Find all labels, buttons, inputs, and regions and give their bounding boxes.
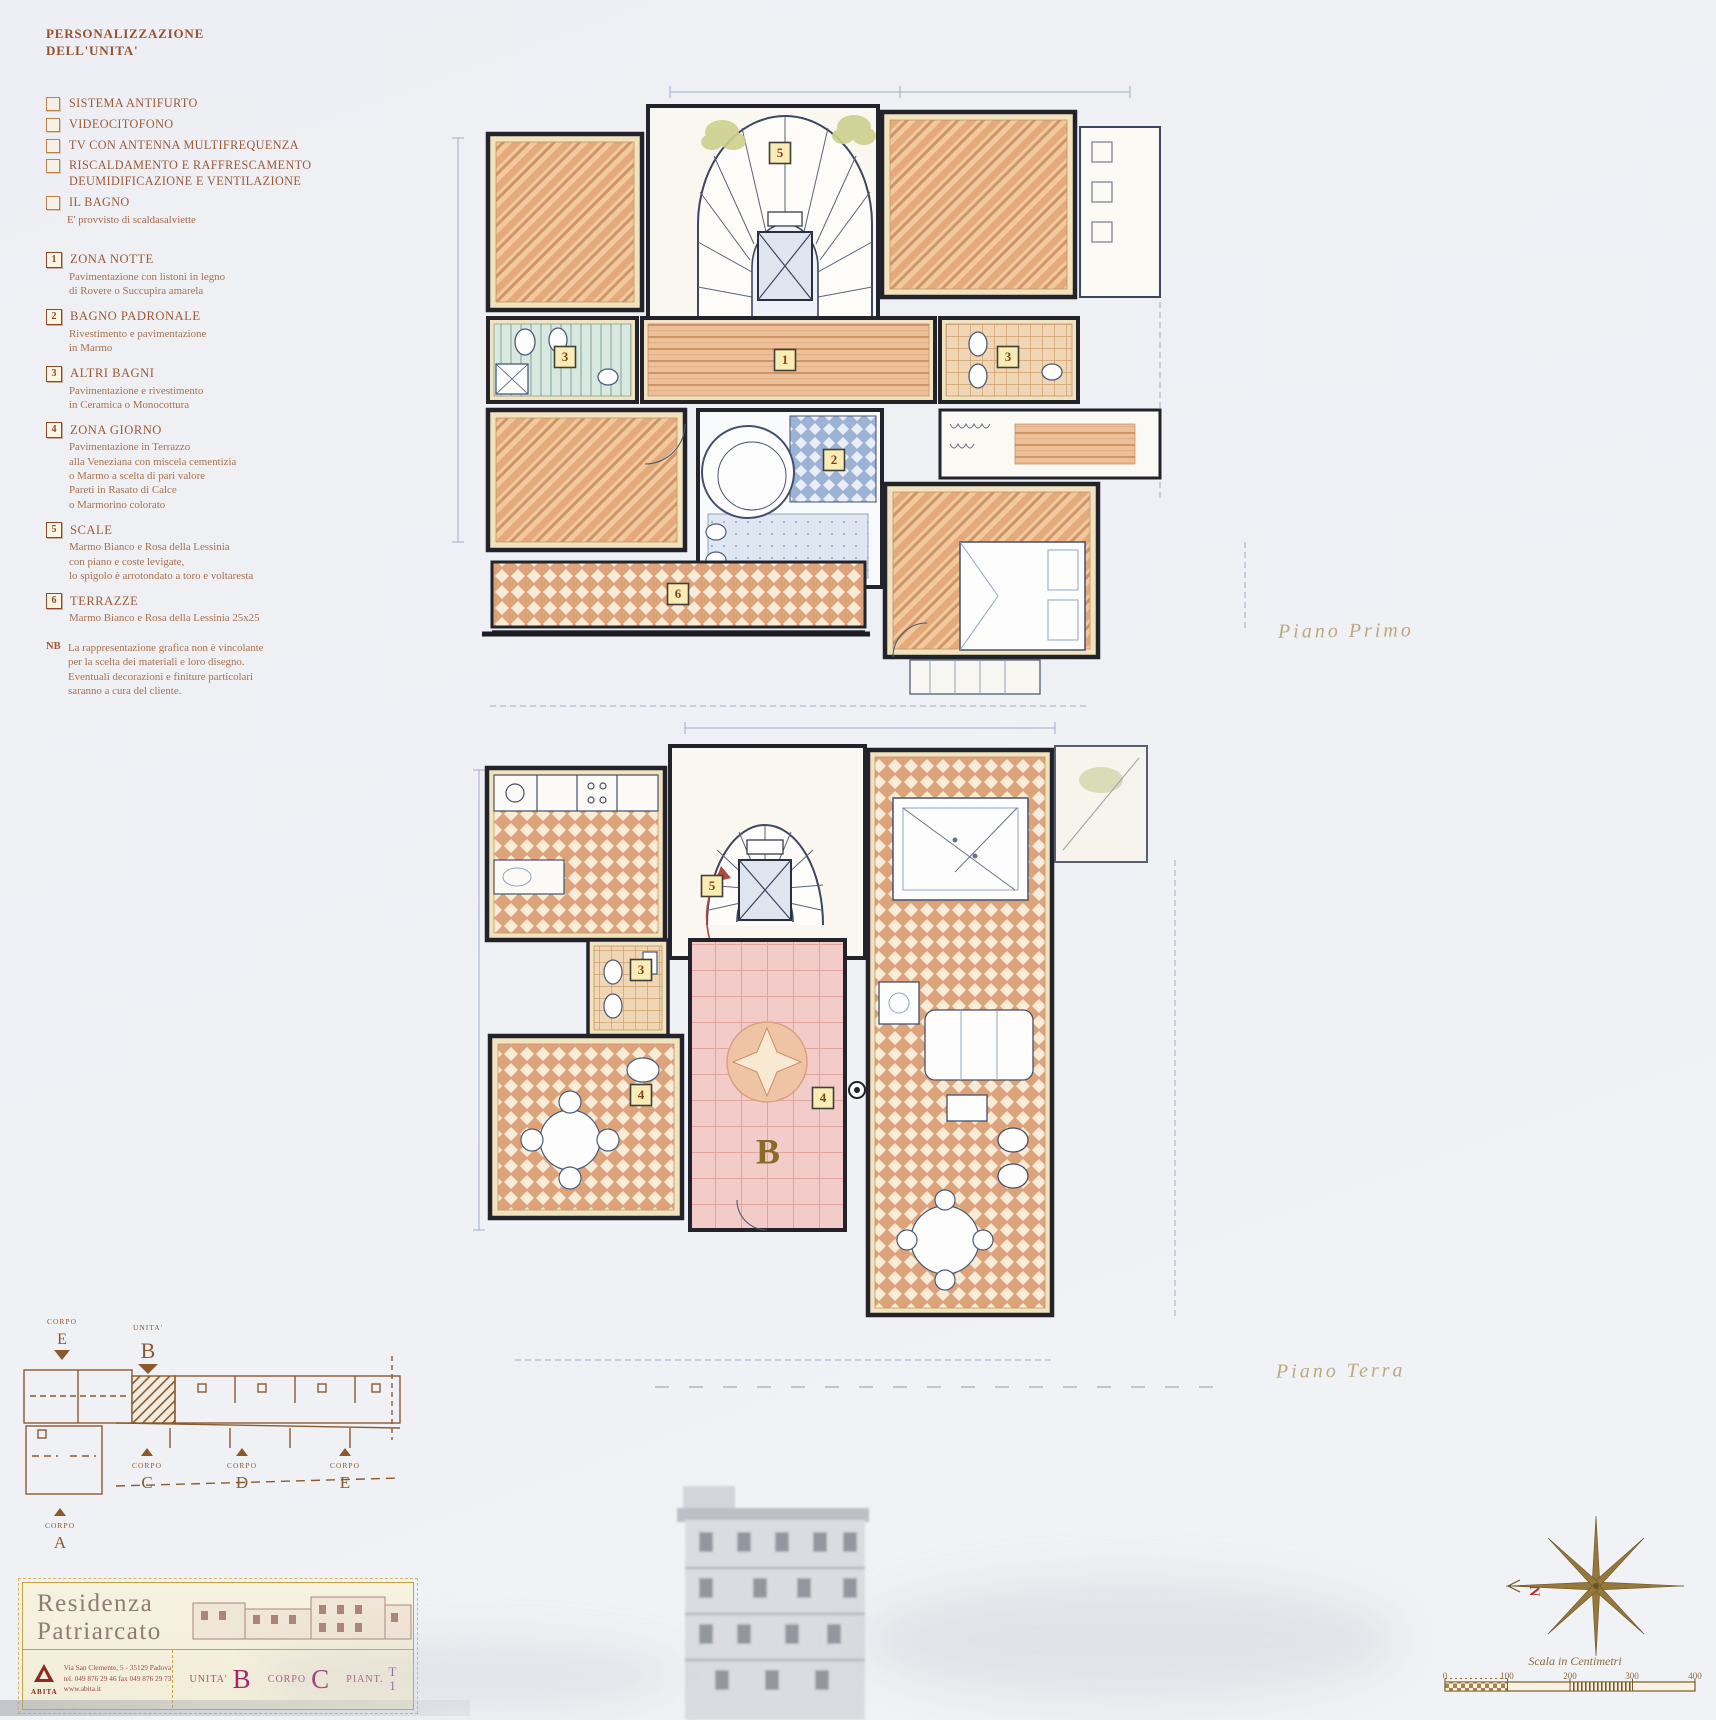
material-title: TERRAZZE bbox=[70, 594, 138, 609]
material-number-chip: 5 bbox=[46, 522, 62, 538]
firm-info: ABITA Via San Clemente, 5 - 35129 Padova… bbox=[23, 1650, 173, 1708]
material-title: ZONA GIORNO bbox=[70, 423, 162, 438]
badge-bagno-right: 3 bbox=[998, 347, 1019, 368]
piano-value-bottom: 1 bbox=[388, 1679, 396, 1693]
site-marker-corpo-e: CORPO E bbox=[330, 1448, 360, 1492]
room-living bbox=[868, 750, 1052, 1315]
checkbox-icon bbox=[46, 159, 60, 173]
legend-option-label: SISTEMA ANTIFURTO bbox=[69, 96, 198, 112]
legend: PERSONALIZZAZIONE DELL'UNITA' SISTEMA AN… bbox=[46, 26, 351, 698]
material-title: ZONA NOTTE bbox=[70, 252, 154, 267]
badge-zona-notte: 1 bbox=[775, 350, 796, 371]
floor-medallion bbox=[727, 1022, 807, 1102]
field-piano-value: T 1 bbox=[388, 1665, 396, 1692]
badge-scale: 5 bbox=[770, 143, 791, 164]
material-desc: Pavimentazione con listoni in legno di R… bbox=[69, 270, 351, 299]
legend-option-row: TV CON ANTENNA MULTIFREQUENZA bbox=[46, 138, 351, 154]
abita-logo-text: ABITA bbox=[31, 1688, 58, 1696]
bagno-note: E' provvisto di scaldasalviette bbox=[67, 214, 351, 226]
terrace-topright bbox=[1055, 746, 1147, 862]
material-number-chip: 2 bbox=[46, 309, 62, 325]
material-title: SCALE bbox=[70, 523, 112, 538]
material-desc: Pavimentazione in Terrazzo alla Venezian… bbox=[69, 440, 351, 512]
svg-text:E: E bbox=[340, 1473, 350, 1492]
field-unita-label: UNITA' bbox=[190, 1674, 228, 1685]
legend-option-label: TV CON ANTENNA MULTIFREQUENZA bbox=[69, 138, 299, 154]
north-label: N bbox=[1526, 1586, 1542, 1597]
checkbox-icon bbox=[46, 196, 60, 210]
title-block: Residenza Patriarcato bbox=[22, 1582, 414, 1710]
field-corpo-value: C bbox=[311, 1666, 329, 1693]
site-marker-corpo-a: CORPO A bbox=[45, 1508, 75, 1552]
legend-options: SISTEMA ANTIFURTO VIDEOCITOFONO TV CON A… bbox=[46, 96, 351, 226]
badge-bagno-left: 3 bbox=[555, 347, 576, 368]
svg-text:C: C bbox=[141, 1473, 152, 1492]
scan-smudge bbox=[860, 1580, 1400, 1700]
legend-title: PERSONALIZZAZIONE DELL'UNITA' bbox=[46, 26, 351, 60]
svg-text:2: 2 bbox=[831, 452, 838, 467]
material-desc: Rivestimento e pavimentazione in Marmo bbox=[69, 327, 351, 356]
material-number-chip: 3 bbox=[46, 366, 62, 382]
nota-bene: NB La rappresentazione grafica non è vin… bbox=[46, 641, 351, 699]
caption-piano-primo: Piano Primo bbox=[1278, 619, 1414, 643]
room-closet-strip bbox=[1080, 127, 1160, 297]
scale-bar-title: Scala in Centimetri bbox=[1528, 1654, 1621, 1668]
material-title: BAGNO PADRONALE bbox=[70, 309, 201, 324]
balcony bbox=[910, 660, 1040, 694]
material-item: 4 ZONA GIORNO Pavimentazione in Terrazzo… bbox=[46, 422, 351, 512]
svg-text:1: 1 bbox=[782, 352, 789, 367]
legend-option-label: IL BAGNO bbox=[69, 195, 130, 211]
legend-option-row: SISTEMA ANTIFURTO bbox=[46, 96, 351, 112]
room-bedroom-lowerleft bbox=[488, 410, 685, 550]
svg-text:3: 3 bbox=[562, 349, 569, 364]
caption-piano-terra: Piano Terra bbox=[1276, 1359, 1406, 1383]
kitchen-counter-icon bbox=[494, 775, 658, 811]
room-wardrobe bbox=[940, 410, 1160, 478]
room-bedroom-topright bbox=[882, 112, 1075, 297]
unit-letter: B bbox=[756, 1131, 780, 1171]
badge-zona-giorno-left: 4 bbox=[631, 1085, 652, 1106]
svg-text:4: 4 bbox=[638, 1087, 645, 1102]
svg-text:CORPO: CORPO bbox=[45, 1521, 75, 1530]
material-item: 6 TERRAZZE Marmo Bianco e Rosa della Les… bbox=[46, 593, 351, 625]
nb-text: La rappresentazione grafica non è vincol… bbox=[68, 641, 264, 699]
room-hall-zona-giorno: B bbox=[690, 940, 845, 1230]
legend-option-row: VIDEOCITOFONO bbox=[46, 117, 351, 133]
checkbox-icon bbox=[46, 118, 60, 132]
svg-text:3: 3 bbox=[638, 962, 645, 977]
legend-materials: 1 ZONA NOTTE Pavimentazione con listoni … bbox=[46, 252, 351, 698]
badge-zona-giorno-hall: 4 bbox=[813, 1088, 834, 1109]
elevation-sketch bbox=[187, 1583, 417, 1647]
abita-logo-icon bbox=[33, 1663, 55, 1683]
svg-text:3: 3 bbox=[1005, 349, 1012, 364]
sheet-fields: UNITA' B CORPO C PIANT. T 1 bbox=[173, 1665, 413, 1692]
badge-bagno-ground: 3 bbox=[631, 960, 652, 981]
field-corpo-label: CORPO bbox=[268, 1674, 306, 1685]
stair-hall bbox=[648, 106, 878, 328]
field-unita-value: B bbox=[233, 1666, 251, 1693]
fireplace-icon bbox=[879, 982, 919, 1024]
site-marker-corpo-top: CORPO E bbox=[47, 1317, 77, 1360]
svg-text:A: A bbox=[54, 1533, 67, 1552]
svg-text:UNITA': UNITA' bbox=[133, 1323, 163, 1332]
legend-option-label: RISCALDAMENTO E RAFFRESCAMENTO DEUMIDIFI… bbox=[69, 158, 311, 190]
svg-text:D: D bbox=[236, 1473, 248, 1492]
legend-option-label: VIDEOCITOFONO bbox=[69, 117, 174, 133]
material-title: ALTRI BAGNI bbox=[70, 366, 154, 381]
elevator-icon bbox=[739, 840, 791, 920]
project-name: Residenza Patriarcato bbox=[23, 1583, 187, 1649]
bathtub-icon bbox=[702, 426, 794, 518]
material-desc: Marmo Bianco e Rosa della Lessinia 25x25 bbox=[69, 611, 351, 625]
stair-hall bbox=[670, 746, 865, 958]
piano-value-top: T bbox=[388, 1665, 396, 1679]
billiard-table-icon bbox=[893, 798, 1028, 900]
badge-bagno-padronale: 2 bbox=[824, 450, 845, 471]
material-item: 3 ALTRI BAGNI Pavimentazione e rivestime… bbox=[46, 366, 351, 413]
floor-plan-ground: B bbox=[455, 710, 1195, 1375]
scale-bar: Scala in Centimetri 0 100 200 300 400 bbox=[1425, 1652, 1715, 1707]
legend-option-row: RISCALDAMENTO E RAFFRESCAMENTO DEUMIDIFI… bbox=[46, 158, 351, 190]
wall-detail bbox=[849, 1082, 865, 1098]
svg-text:CORPO: CORPO bbox=[132, 1461, 162, 1470]
site-marker-unita-b: UNITA' B bbox=[133, 1323, 163, 1374]
material-desc: Marmo Bianco e Rosa della Lessinia con p… bbox=[69, 540, 351, 583]
svg-text:E: E bbox=[57, 1331, 67, 1348]
material-number-chip: 6 bbox=[46, 593, 62, 609]
drawing-sheet: PERSONALIZZAZIONE DELL'UNITA' SISTEMA AN… bbox=[0, 0, 1716, 1720]
material-desc: Pavimentazione e rivestimento in Ceramic… bbox=[69, 384, 351, 413]
site-key-plan: CORPO E UNITA' B CORPO C CORPO D CORPO E… bbox=[20, 1208, 400, 1580]
svg-text:6: 6 bbox=[675, 586, 682, 601]
floor-plan-first: 5 1 3 3 2 6 bbox=[430, 72, 1170, 717]
compass-rose-icon: N bbox=[1498, 1498, 1688, 1663]
material-item: 5 SCALE Marmo Bianco e Rosa della Lessin… bbox=[46, 522, 351, 583]
svg-text:CORPO: CORPO bbox=[47, 1317, 77, 1326]
badge-scale-ground: 5 bbox=[702, 876, 723, 897]
room-bath-ground bbox=[588, 940, 668, 1036]
svg-text:4: 4 bbox=[820, 1090, 827, 1105]
legend-option-row: IL BAGNO bbox=[46, 195, 351, 211]
site-marker-corpo-d: CORPO D bbox=[227, 1448, 257, 1492]
firm-address: Via San Clemente, 5 - 35129 Padova tel. … bbox=[64, 1663, 172, 1695]
facade-sketch bbox=[655, 1390, 895, 1720]
svg-text:B: B bbox=[141, 1338, 156, 1363]
field-piano-label: PIANT. bbox=[346, 1674, 383, 1685]
room-master-bath bbox=[698, 410, 882, 587]
material-item: 1 ZONA NOTTE Pavimentazione con listoni … bbox=[46, 252, 351, 299]
room-sitting bbox=[490, 1036, 682, 1218]
checkbox-icon bbox=[46, 139, 60, 153]
nb-label: NB bbox=[46, 641, 68, 699]
badge-terrazza: 6 bbox=[668, 584, 689, 605]
material-item: 2 BAGNO PADRONALE Rivestimento e pavimen… bbox=[46, 309, 351, 356]
bed-icon bbox=[960, 542, 1085, 650]
room-bedroom-bottomright bbox=[885, 484, 1098, 657]
svg-text:5: 5 bbox=[709, 878, 716, 893]
material-number-chip: 1 bbox=[46, 252, 62, 268]
material-number-chip: 4 bbox=[46, 422, 62, 438]
svg-text:CORPO: CORPO bbox=[227, 1461, 257, 1470]
room-kitchen bbox=[487, 768, 665, 940]
room-bedroom-topleft bbox=[488, 134, 642, 310]
svg-text:5: 5 bbox=[777, 145, 784, 160]
checkbox-icon bbox=[46, 97, 60, 111]
scan-artifact-dots bbox=[655, 1386, 1215, 1388]
svg-text:CORPO: CORPO bbox=[330, 1461, 360, 1470]
